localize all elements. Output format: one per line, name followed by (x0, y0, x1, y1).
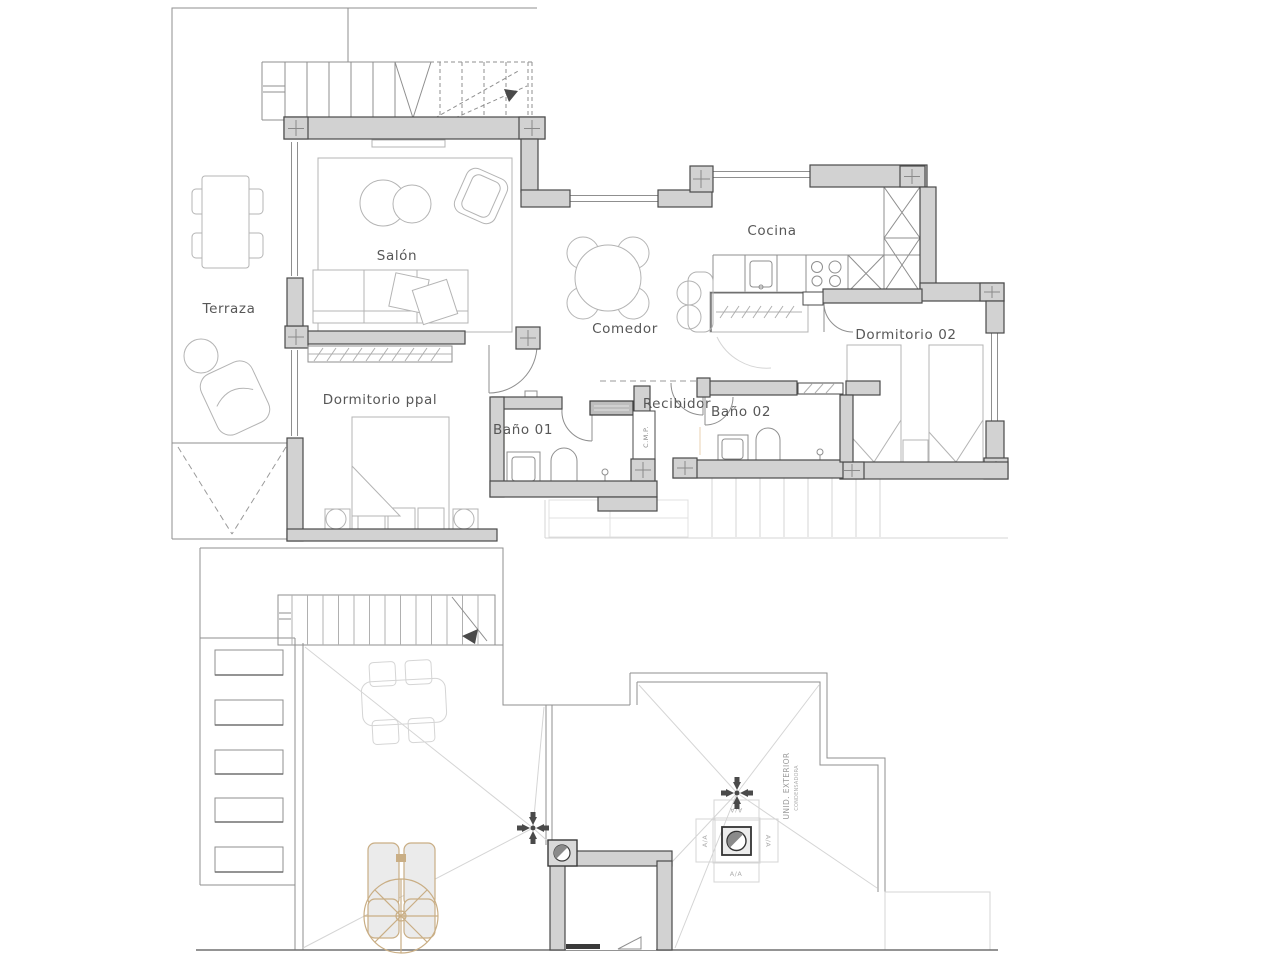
roof-table-set (360, 659, 448, 745)
label-condensadora: CONDENSADORA (794, 765, 800, 811)
shaft (548, 840, 672, 950)
floor-plans-svg: Terraza Salón Cocina Comedor Dormitorio … (0, 0, 1280, 960)
label-bano01: Baño 01 (493, 422, 553, 438)
label-dormitorio-ppal: Dormitorio ppal (323, 392, 437, 408)
roof-plan: A/A A/A A/A A/A UNID. EXTERIOR CONDENSAD… (196, 548, 998, 953)
twin-beds (847, 345, 983, 463)
parasol (364, 879, 438, 953)
stair-direction-arrow (462, 629, 478, 644)
label-aa-bottom: A/A (730, 870, 743, 878)
label-unidad-exterior: UNID. EXTERIOR (782, 752, 791, 819)
loungers-and-parasol (364, 843, 438, 953)
apartment-floor-plan: Terraza Salón Cocina Comedor Dormitorio … (172, 8, 1008, 541)
label-aa-left: A/A (701, 835, 709, 848)
label-salon: Salón (377, 248, 417, 264)
label-aa-right: A/A (764, 835, 772, 848)
annex-roof (885, 892, 990, 950)
staircase-roof (278, 595, 495, 645)
label-dormitorio02: Dormitorio 02 (855, 327, 956, 343)
label-recibidor: Recibidor (643, 396, 711, 412)
label-comedor: Comedor (592, 321, 658, 337)
wardrobe (308, 346, 452, 362)
bar-stool (677, 305, 701, 329)
sofa (313, 270, 468, 325)
label-terraza: Terraza (202, 301, 256, 317)
living-room-furniture (313, 134, 512, 332)
label-cmp: C.M.P. (642, 426, 650, 448)
architectural-drawing-canvas: Terraza Salón Cocina Comedor Dormitorio … (0, 0, 1280, 960)
kitchen-hob (806, 255, 848, 292)
label-cocina: Cocina (747, 223, 796, 239)
terrace-dining-set (192, 176, 263, 268)
bar-stool (677, 281, 701, 305)
towel-radiator (798, 383, 843, 394)
master-bed (325, 417, 478, 531)
terrace-lounge (184, 339, 274, 440)
label-bano02: Baño 02 (711, 404, 771, 420)
vent-fan (548, 840, 577, 866)
drain-symbol (517, 812, 549, 844)
armchair (451, 165, 511, 227)
dining-set (567, 237, 649, 319)
shaft-hatch (566, 944, 600, 949)
bathroom2-fixtures (700, 427, 823, 464)
roof-slope-lines-right (639, 685, 877, 948)
ac-outdoor-unit: A/A A/A A/A A/A UNID. EXTERIOR CONDENSAD… (696, 752, 800, 882)
kitchen-fittings (677, 187, 920, 332)
towel-radiator (590, 401, 633, 415)
planter-strip (215, 650, 283, 872)
bar-counter (677, 272, 808, 332)
staircase-upper (262, 62, 532, 120)
